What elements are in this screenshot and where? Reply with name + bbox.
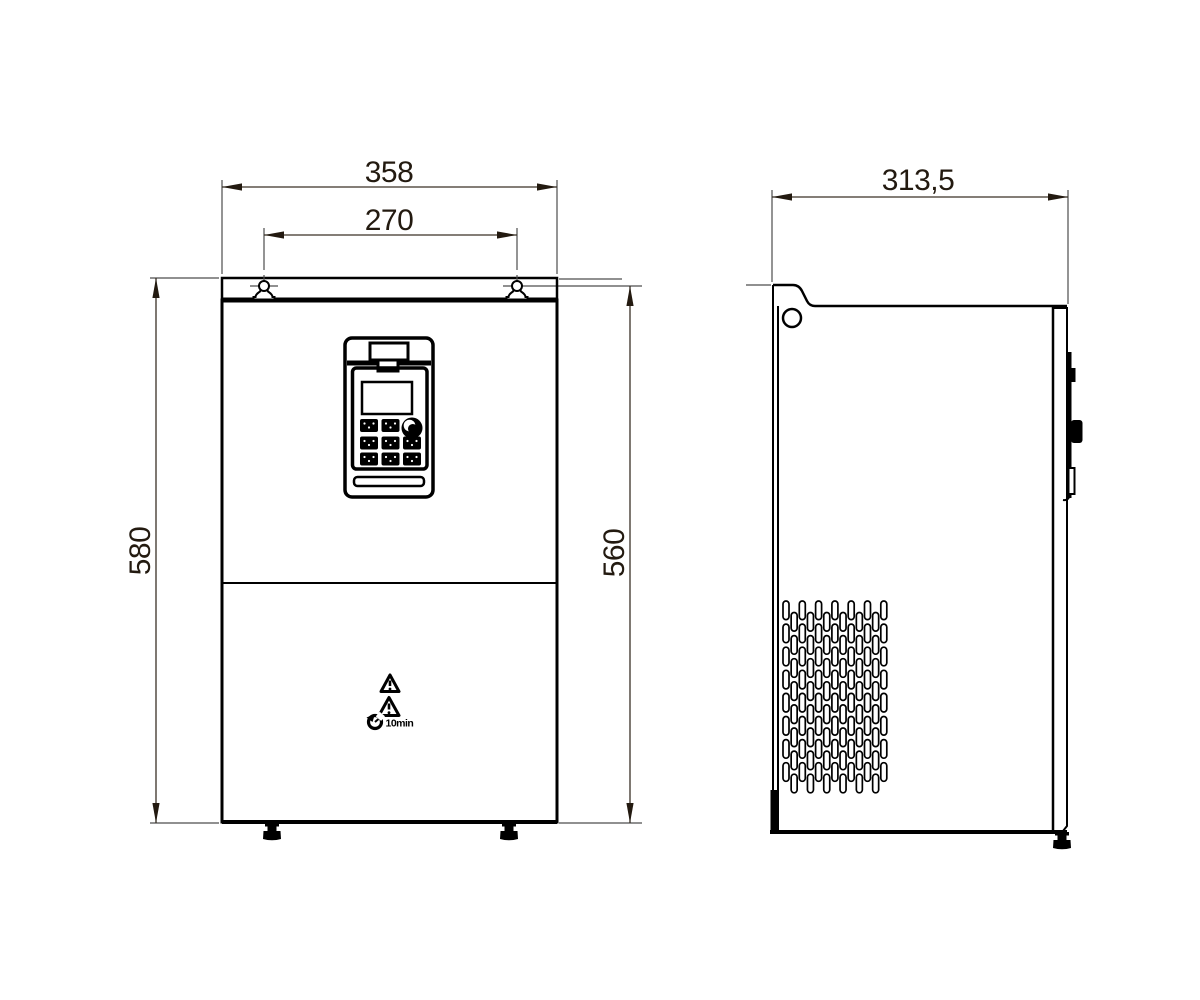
warning-labels: 10min: [367, 675, 414, 730]
vent-slot: [881, 601, 887, 620]
vent-slot: [840, 774, 846, 793]
button-dot: [363, 456, 365, 458]
vent-slot: [881, 717, 887, 736]
vent-slot: [816, 763, 822, 782]
dim-body-height-label: 560: [598, 529, 631, 578]
triangle-exclamation-icon: [379, 698, 399, 716]
vent-slot: [873, 682, 879, 701]
side-enclosure: [746, 285, 1067, 832]
drawing-page: 358 270 580 560: [0, 0, 1200, 1000]
vent-slot: [865, 624, 871, 643]
vent-slot: [783, 717, 789, 736]
dimension-hole-spacing: 270: [264, 204, 517, 270]
vent-slot: [799, 647, 805, 666]
side-top-profile: [773, 285, 1067, 306]
front-view: 358 270 580 560: [124, 156, 642, 840]
vent-slot: [840, 636, 846, 655]
arrowhead-left: [264, 231, 284, 238]
keypad-button: [360, 437, 378, 450]
vent-slot: [783, 647, 789, 666]
button-dot: [385, 422, 387, 424]
vent-slot: [807, 774, 813, 793]
button-dot: [411, 460, 413, 462]
dim-overall-width-label: 358: [365, 156, 414, 189]
keypad-display: [362, 382, 412, 414]
keypad-button: [382, 453, 400, 466]
keypad-bottom-slot: [354, 477, 424, 486]
arrowhead-top: [152, 278, 159, 298]
vent-slot: [865, 601, 871, 620]
vent-slot: [807, 705, 813, 724]
vent-slot: [816, 601, 822, 620]
foot-screw: [502, 823, 516, 827]
vent-slot: [824, 751, 830, 770]
vent-slot: [807, 613, 813, 632]
vent-slot: [832, 670, 838, 689]
vent-slot: [832, 763, 838, 782]
vent-slot: [873, 613, 879, 632]
vent-slot: [791, 705, 797, 724]
button-dot: [411, 444, 413, 446]
vent-slot: [832, 717, 838, 736]
vent-slot: [799, 717, 805, 736]
vent-slot: [848, 763, 854, 782]
vent-slot: [873, 636, 879, 655]
foot-screw: [268, 826, 277, 831]
vent-slot: [816, 670, 822, 689]
arrowhead-right: [1048, 193, 1068, 200]
vent-slot: [807, 659, 813, 678]
button-dot: [363, 440, 365, 442]
vent-slot: [799, 693, 805, 712]
vent-slot: [848, 693, 854, 712]
bracket-hole: [783, 309, 801, 327]
button-dot: [415, 440, 417, 442]
vent-slot: [832, 647, 838, 666]
vent-slot: [881, 763, 887, 782]
vent-slot: [848, 601, 854, 620]
arrowhead-bottom: [626, 803, 633, 823]
arrowhead-bottom: [152, 803, 159, 823]
knob-bump: [1071, 420, 1083, 443]
vent-slot: [791, 751, 797, 770]
vent-slot: [824, 774, 830, 793]
triangle-exclamation-icon: [381, 675, 399, 692]
vent-slot: [856, 682, 862, 701]
side-feet: [1053, 832, 1071, 849]
button-dot: [363, 422, 365, 424]
arrowhead-left: [222, 183, 242, 190]
vent-slot: [824, 659, 830, 678]
vent-slot: [832, 693, 838, 712]
vent-slot: [848, 624, 854, 643]
vent-slot: [783, 601, 789, 620]
vent-slot: [865, 693, 871, 712]
dimension-overall-height: 580: [124, 278, 219, 823]
vent-slot: [856, 705, 862, 724]
foot-screw: [1055, 832, 1069, 836]
button-dot: [389, 426, 391, 428]
vent-slot: [856, 774, 862, 793]
foot-screw: [505, 826, 514, 831]
button-dot: [394, 456, 396, 458]
vent-grid: [783, 601, 887, 793]
back-plate-foot-step: [771, 790, 778, 832]
keypad-top-hook: [1069, 368, 1076, 382]
vent-slot: [824, 636, 830, 655]
vent-slot: [840, 728, 846, 747]
vent-slot: [856, 659, 862, 678]
arrowhead-right: [537, 183, 557, 190]
vent-slot: [824, 705, 830, 724]
foot-screw: [500, 831, 518, 840]
button-dot: [368, 444, 370, 446]
vent-slot: [783, 763, 789, 782]
keypad-top-window: [370, 343, 408, 360]
button-dot: [368, 460, 370, 462]
vent-slot: [840, 659, 846, 678]
vent-slot: [816, 624, 822, 643]
vent-slot: [791, 659, 797, 678]
arrowhead-left: [772, 193, 792, 200]
keypad-side-profile: [1063, 352, 1083, 500]
vent-slot: [865, 763, 871, 782]
vent-slot: [840, 613, 846, 632]
keyhole-circle: [512, 281, 522, 291]
button-dot: [389, 460, 391, 462]
vent-slot: [799, 601, 805, 620]
front-feet: [263, 823, 518, 840]
vent-slot: [848, 647, 854, 666]
vent-slot: [840, 705, 846, 724]
vent-slot: [816, 740, 822, 759]
keypad-button: [403, 453, 421, 466]
button-dot: [372, 422, 374, 424]
foot-screw: [263, 831, 281, 840]
arrowhead-top: [626, 286, 633, 306]
vent-slot: [807, 728, 813, 747]
vent-slot: [807, 751, 813, 770]
keypad-button: [360, 453, 378, 466]
button-dot: [385, 440, 387, 442]
foot-screw: [1053, 840, 1071, 849]
button-dot: [385, 456, 387, 458]
dimension-overall-depth: 313,5: [772, 164, 1068, 304]
clock-discharge-icon: [367, 712, 385, 729]
keypad-button: [382, 419, 400, 432]
front-cover-edge: [1063, 307, 1067, 831]
vent-slot: [832, 601, 838, 620]
button-dot: [406, 440, 408, 442]
vent-slot: [881, 740, 887, 759]
vent-slot: [783, 740, 789, 759]
vent-slot: [791, 613, 797, 632]
vent-slot: [832, 740, 838, 759]
vent-slot: [873, 751, 879, 770]
vent-slot: [848, 717, 854, 736]
vent-slot: [783, 624, 789, 643]
vent-slot: [832, 624, 838, 643]
keyhole-circle: [259, 281, 269, 291]
vent-slot: [873, 774, 879, 793]
vent-slot: [865, 647, 871, 666]
keypad-button: [360, 419, 378, 432]
vent-slot: [881, 693, 887, 712]
vent-slot: [840, 682, 846, 701]
vent-slot: [824, 613, 830, 632]
button-dot: [389, 444, 391, 446]
dimension-body-height: 560: [503, 279, 642, 823]
keypad-button: [382, 437, 400, 450]
vent-slot: [865, 717, 871, 736]
vent-slot: [856, 728, 862, 747]
vent-slot: [856, 751, 862, 770]
vent-slot: [783, 670, 789, 689]
vent-slot: [824, 728, 830, 747]
side-view: 313,5: [746, 164, 1083, 849]
vent-slot: [873, 728, 879, 747]
vent-slot: [816, 693, 822, 712]
vent-slot: [865, 740, 871, 759]
foot-screw: [265, 823, 279, 827]
wait-time-label: 10min: [386, 718, 414, 730]
vent-slot: [873, 705, 879, 724]
vent-slot: [816, 647, 822, 666]
vent-slot: [791, 636, 797, 655]
vent-slot: [791, 774, 797, 793]
button-dot: [394, 440, 396, 442]
vent-slot: [856, 613, 862, 632]
button-dot: [406, 456, 408, 458]
vent-slot: [799, 624, 805, 643]
vent-slot: [881, 670, 887, 689]
vfd-dimension-drawing: 358 270 580 560: [0, 0, 1200, 1000]
button-dot: [415, 456, 417, 458]
vent-slot: [881, 647, 887, 666]
dim-overall-depth-label: 313,5: [882, 164, 955, 197]
dim-hole-spacing-label: 270: [365, 204, 414, 237]
vent-slot: [848, 670, 854, 689]
vent-slot: [824, 682, 830, 701]
vent-slot: [799, 763, 805, 782]
keypad-panel: [345, 338, 433, 497]
button-dot: [368, 426, 370, 428]
vent-slot: [807, 636, 813, 655]
arrowhead-right: [497, 231, 517, 238]
button-dot: [394, 422, 396, 424]
dim-overall-height-label: 580: [124, 527, 157, 576]
vent-slot: [881, 624, 887, 643]
vent-slot: [791, 728, 797, 747]
vent-slot: [783, 693, 789, 712]
vent-slot: [840, 751, 846, 770]
foot-screw: [1058, 835, 1067, 840]
vent-slot: [799, 670, 805, 689]
vent-slot: [816, 717, 822, 736]
vent-slot: [856, 636, 862, 655]
vent-slot: [807, 682, 813, 701]
button-dot: [372, 456, 374, 458]
vent-slot: [799, 740, 805, 759]
vent-slot: [848, 740, 854, 759]
rotary-knob-icon: [402, 418, 423, 439]
vent-slot: [865, 670, 871, 689]
keypad-bottom-hook: [1069, 468, 1075, 494]
vent-slot: [791, 682, 797, 701]
vent-slot: [873, 659, 879, 678]
button-dot: [372, 440, 374, 442]
